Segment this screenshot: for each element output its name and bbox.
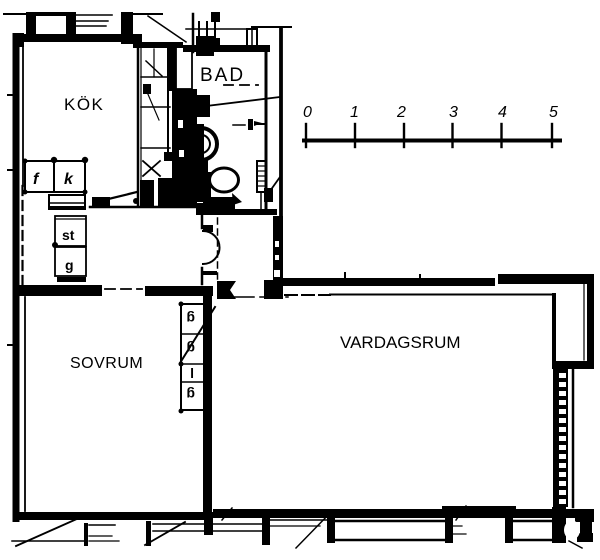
svg-text:1: 1 <box>350 104 359 121</box>
svg-text:2: 2 <box>396 104 406 121</box>
svg-text:g: g <box>186 341 195 357</box>
svg-text:3: 3 <box>449 104 458 121</box>
svg-text:SOVRUM: SOVRUM <box>70 355 143 372</box>
svg-text:g: g <box>186 311 195 327</box>
svg-text:st: st <box>62 227 75 243</box>
svg-text:l: l <box>190 365 194 381</box>
svg-text:4: 4 <box>498 104 507 121</box>
svg-text:VARDAGSRUM: VARDAGSRUM <box>340 333 461 352</box>
svg-text:g: g <box>186 387 195 403</box>
svg-text:KÖK: KÖK <box>64 95 104 114</box>
svg-text:k: k <box>64 171 74 188</box>
svg-text:5: 5 <box>549 104 558 121</box>
svg-text:g: g <box>65 257 74 273</box>
svg-text:BAD: BAD <box>200 65 245 86</box>
svg-text:0: 0 <box>303 104 312 121</box>
